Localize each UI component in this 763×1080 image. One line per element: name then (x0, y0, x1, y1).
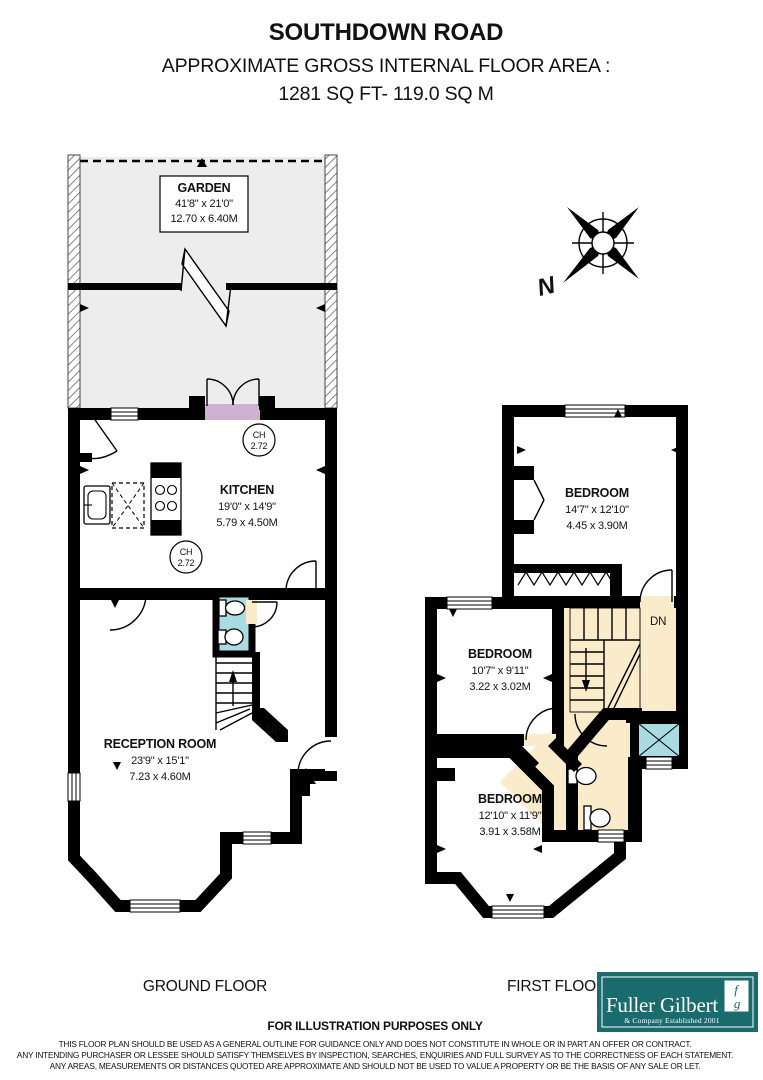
kitchen-label: KITCHEN 19'0" x 14'9" 5.79 x 4.50M (216, 483, 277, 529)
kitchen-dim-ft: 19'0" x 14'9" (218, 501, 276, 513)
ch-label-1: CH (253, 430, 266, 440)
ground-floor-label: GROUND FLOOR (143, 978, 267, 995)
bedroom3-label: BEDROOM 12'10" x 11'9" 3.91 x 3.58M (478, 792, 542, 838)
bedroom2-dim-ft: 10'7" x 9'11" (472, 665, 529, 677)
stairs-up-arrow-icon (229, 670, 237, 682)
bedroom1-name: BEDROOM (565, 486, 629, 500)
garden-wall-left (68, 155, 80, 408)
garden-name: GARDEN (178, 181, 231, 195)
garden-dim-ft: 41'8" x 21'0" (175, 198, 233, 210)
stairs-down-label: DN (650, 616, 666, 628)
ceiling-height-badge-1: CH 2.72 (243, 424, 275, 456)
monogram-g: g (734, 996, 741, 1011)
header-subtitle: APPROXIMATE GROSS INTERNAL FLOOR AREA : (162, 55, 610, 77)
kitchen-sink (84, 486, 110, 524)
fg-monogram-icon: f g (724, 980, 749, 1012)
footer-heading: FOR ILLUSTRATION PURPOSES ONLY (267, 1019, 483, 1033)
first-floor-plan: BEDROOM 14'7" x 12'10" 4.45 x 3.90M BEDR… (431, 405, 688, 995)
bedroom2-label: BEDROOM 10'7" x 9'11" 3.22 x 3.02M (468, 647, 532, 693)
garden-area: GARDEN 41'8" x 21'0" 12.70 x 6.40M (68, 155, 337, 408)
header: SOUTHDOWN ROAD APPROXIMATE GROSS INTERNA… (162, 19, 610, 105)
agency-logo: Fuller Gilbert & Company Established 200… (597, 972, 758, 1032)
bathroom-window (598, 830, 624, 842)
toilet-icon (219, 600, 245, 616)
shower-icon (638, 723, 680, 757)
bedroom3-bay-window (492, 906, 544, 918)
ch-label-2: CH (180, 547, 193, 557)
reception-label: RECEPTION ROOM 23'9" x 15'1" 7.23 x 4.60… (104, 737, 216, 783)
bay-window (130, 900, 180, 912)
bedroom2-window (447, 597, 492, 609)
header-area: 1281 SQ FT- 119.0 SQ M (278, 83, 493, 105)
reception-dim-ft: 23'9" x 15'1" (131, 755, 189, 767)
basin-icon (218, 629, 243, 645)
ch-value-1: 2.72 (251, 441, 268, 451)
reception-room: RECEPTION ROOM 23'9" x 15'1" 7.23 x 4.60… (68, 594, 337, 912)
bedroom1-label: BEDROOM 14'7" x 12'10" 4.45 x 3.90M (565, 486, 629, 532)
floorplan-page: SOUTHDOWN ROAD APPROXIMATE GROSS INTERNA… (0, 0, 763, 1080)
compass-rose-icon: N (535, 207, 639, 302)
footer-disclaimer-1: THIS FLOOR PLAN SHOULD BE USED AS A GENE… (59, 1039, 692, 1049)
entrance-door (298, 737, 337, 774)
rooflight (112, 483, 144, 528)
company-name: Fuller Gilbert (606, 993, 718, 1017)
stairs-up-label: UP (266, 724, 282, 736)
floorplan-drawing: SOUTHDOWN ROAD APPROXIMATE GROSS INTERNA… (0, 0, 763, 1080)
wc-room (216, 594, 277, 654)
bedroom1-room: BEDROOM 14'7" x 12'10" 4.45 x 3.90M (508, 405, 682, 608)
bedroom1-dim-m: 4.45 x 3.90M (566, 520, 627, 532)
ch-value-2: 2.72 (178, 558, 195, 568)
kitchen-window (111, 408, 138, 420)
reception-dim-m: 7.23 x 4.60M (129, 771, 190, 783)
bedroom3-wall-notch (437, 768, 455, 781)
wc-door (246, 600, 277, 627)
bedroom3-dim-m: 3.91 x 3.58M (479, 826, 540, 838)
landing-window (646, 757, 672, 769)
ground-floor-plan: GARDEN 41'8" x 21'0" 12.70 x 6.40M (68, 155, 337, 995)
bedroom2-room: BEDROOM 10'7" x 9'11" 3.22 x 3.02M (431, 597, 558, 746)
company-tagline: & Company Established 2001 (624, 1016, 719, 1025)
stairs-ground: UP (216, 652, 288, 742)
bedroom3-dim-ft: 12'10" x 11'9" (479, 810, 542, 822)
kitchen-island-hob (151, 463, 181, 535)
reception-left-window (68, 773, 80, 801)
kitchen-name: KITCHEN (220, 483, 274, 497)
garden-label-box: GARDEN 41'8" x 21'0" 12.70 x 6.40M (160, 176, 248, 232)
bedroom2-name: BEDROOM (468, 647, 532, 661)
north-label: N (535, 271, 559, 302)
garden-wall-right (325, 155, 337, 408)
first-floor-label: FIRST FLOOR (507, 978, 607, 995)
reception-name: RECEPTION ROOM (104, 737, 216, 751)
ceiling-height-badge-2: CH 2.72 (170, 541, 202, 573)
page-title: SOUTHDOWN ROAD (269, 19, 504, 46)
garden-dim-m: 12.70 x 6.40M (170, 213, 237, 225)
footer-disclaimer-3: ANY AREAS, MEASUREMENTS OR DISTANCES QUO… (50, 1061, 701, 1071)
bedroom3-name: BEDROOM (478, 792, 542, 806)
bedroom1-door (640, 570, 674, 608)
reception-right-window (243, 832, 271, 844)
bedroom1-dim-ft: 14'7" x 12'10" (565, 504, 629, 516)
bedroom2-dim-m: 3.22 x 3.02M (469, 681, 530, 693)
kitchen-dim-m: 5.79 x 4.50M (216, 517, 277, 529)
footer-disclaimer-2: ANY INTENDING PURCHASER OR LESSEE SHOULD… (17, 1050, 733, 1060)
hanging-rail-icon (518, 572, 613, 585)
